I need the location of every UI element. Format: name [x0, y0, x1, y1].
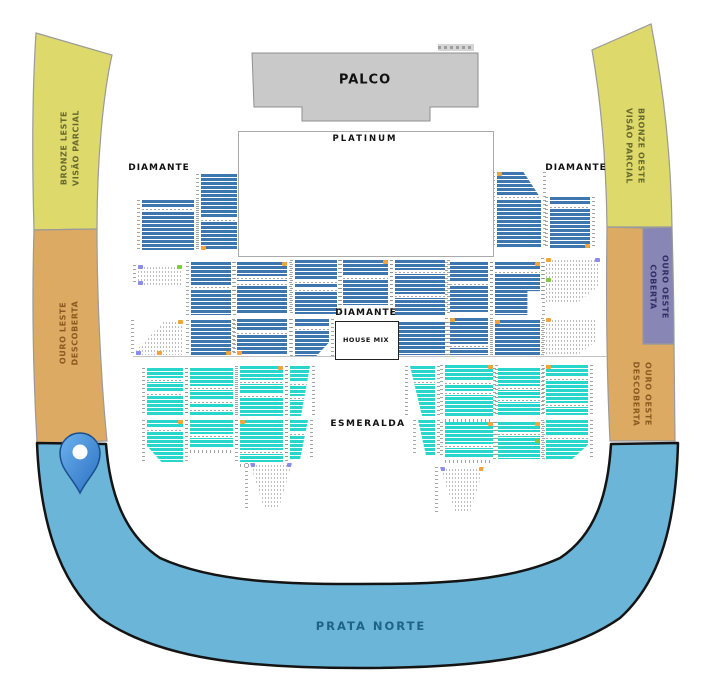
- seat-area-open[interactable]: [136, 320, 183, 355]
- row-number-strip: [405, 366, 408, 416]
- empty-seat-row: [445, 444, 493, 448]
- row-number-strip: [493, 422, 496, 459]
- empty-seat-row: [498, 398, 540, 402]
- seat-area-open[interactable]: [546, 258, 600, 302]
- row-number-strip: [131, 320, 134, 355]
- seat-accent-marker: [595, 258, 600, 262]
- empty-seat-row: [142, 207, 194, 211]
- empty-seat-row: [393, 233, 435, 237]
- seat-blocks-layer: [0, 0, 717, 687]
- seat-block-blue[interactable]: [395, 260, 445, 315]
- row-number-strip: [285, 420, 288, 460]
- row-number-strip: [186, 320, 189, 355]
- seat-accent-marker: [157, 351, 162, 355]
- empty-seat-row: [245, 168, 285, 172]
- row-number-strip: [590, 365, 593, 415]
- row-number-strip: [239, 174, 242, 250]
- seat-accent-marker: [138, 265, 143, 269]
- row-number-strip: [186, 262, 189, 315]
- seat-number-row: [293, 143, 335, 146]
- seat-block-cyan[interactable]: [498, 422, 540, 459]
- seat-accent-marker: [430, 205, 435, 209]
- seat-accent-marker: [450, 318, 455, 322]
- row-number-strip: [487, 205, 490, 247]
- row-number-strip: [310, 420, 313, 460]
- row-number-strip: [232, 262, 235, 313]
- row-number-strip: [388, 205, 391, 247]
- seat-block-blue[interactable]: [237, 262, 287, 313]
- seat-accent-marker: [535, 422, 540, 426]
- row-number-strip: [312, 366, 315, 416]
- seat-accent-marker: [546, 365, 551, 369]
- seat-accent-marker: [495, 320, 500, 324]
- row-number-strip: [337, 205, 340, 247]
- seat-number-row: [393, 143, 435, 146]
- empty-seat-row: [395, 294, 445, 298]
- seat-block-blue[interactable]: [495, 262, 540, 315]
- seat-accent-marker: [440, 467, 445, 471]
- seat-block-blue[interactable]: [237, 319, 287, 355]
- seat-accent-marker: [383, 260, 388, 264]
- seat-number-row: [190, 450, 233, 453]
- seat-accent-marker: [546, 278, 551, 282]
- empty-seat-row: [442, 161, 485, 165]
- row-number-strip: [493, 368, 496, 416]
- row-number-strip: [337, 147, 340, 200]
- row-number-strip: [235, 420, 238, 462]
- empty-seat-row: [498, 386, 540, 390]
- seat-accent-marker: [535, 262, 540, 266]
- seat-block-gold[interactable]: [442, 147, 485, 200]
- seat-block-cyan[interactable]: [147, 368, 183, 415]
- empty-seat-row: [295, 327, 329, 331]
- seat-accent-marker: [201, 246, 206, 250]
- seat-accent-marker: [280, 152, 285, 156]
- row-number-strip: [142, 368, 145, 415]
- seat-accent-marker: [479, 487, 484, 491]
- empty-seat-row: [497, 195, 541, 199]
- seat-block-cyan[interactable]: [418, 420, 435, 456]
- seat-block-gold[interactable]: [393, 148, 435, 200]
- empty-seat-row: [343, 276, 388, 280]
- seat-accent-marker: [250, 484, 255, 488]
- row-number-strip: [390, 260, 393, 315]
- empty-seat-row: [450, 344, 488, 348]
- seat-block-gold[interactable]: [342, 205, 385, 247]
- row-number-strip: [590, 420, 593, 460]
- row-number-strip: [541, 318, 544, 356]
- empty-seat-row: [342, 157, 385, 161]
- empty-seat-row: [237, 282, 287, 286]
- row-number-strip: [290, 260, 293, 314]
- seat-block-blue[interactable]: [395, 322, 445, 355]
- empty-seat-row: [442, 221, 485, 225]
- row-number-strip: [232, 319, 235, 355]
- seat-block-cyan[interactable]: [445, 422, 493, 458]
- seat-accent-marker: [178, 420, 183, 424]
- row-number-strip: [437, 147, 440, 200]
- row-number-strip: [235, 366, 238, 416]
- seat-accent-marker: [240, 420, 245, 424]
- seat-accent-marker: [535, 439, 540, 443]
- seat-block-blue[interactable]: [343, 260, 388, 305]
- empty-seat-row: [191, 285, 231, 289]
- row-number-strip: [413, 420, 416, 456]
- seat-block-gold[interactable]: [342, 147, 385, 200]
- seat-block-cyan[interactable]: [290, 366, 310, 416]
- seat-block-blue[interactable]: [295, 319, 329, 357]
- seat-block-blue[interactable]: [550, 197, 590, 248]
- row-number-strip: [445, 262, 448, 312]
- seat-accent-marker: [237, 351, 242, 355]
- venue-seating-map: PALCO PLATINUM DIAMANTE DIAMANTE DIAMANT…: [0, 0, 717, 687]
- empty-seat-row: [295, 288, 337, 292]
- seat-block-cyan[interactable]: [190, 368, 233, 415]
- empty-seat-row: [240, 394, 283, 398]
- empty-seat-row: [293, 178, 335, 182]
- empty-seat-row: [190, 434, 233, 438]
- seat-accent-marker: [497, 172, 502, 176]
- seat-accent-marker: [136, 351, 141, 355]
- seat-block-cyan[interactable]: [147, 420, 183, 462]
- empty-seat-row: [290, 382, 310, 386]
- seat-accent-marker: [479, 467, 484, 471]
- empty-seat-row: [410, 380, 435, 384]
- row-number-strip: [133, 265, 136, 285]
- seat-block-cyan[interactable]: [498, 368, 540, 416]
- empty-seat-row: [445, 391, 493, 395]
- empty-seat-row: [295, 280, 337, 284]
- row-number-strip: [185, 368, 188, 415]
- row-number-strip: [440, 365, 443, 417]
- empty-seat-row: [290, 432, 308, 436]
- seat-block-blue[interactable]: [295, 260, 337, 314]
- seat-number-row: [445, 460, 493, 463]
- row-number-strip: [541, 258, 544, 302]
- seat-block-blue[interactable]: [201, 174, 237, 250]
- empty-seat-row: [201, 218, 237, 222]
- row-number-strip: [435, 467, 438, 512]
- empty-seat-row: [393, 184, 435, 188]
- row-number-strip: [285, 366, 288, 416]
- empty-seat-row: [237, 276, 287, 280]
- seat-block-blue[interactable]: [191, 262, 231, 315]
- row-number-strip: [490, 262, 493, 315]
- seat-accent-marker: [591, 352, 596, 356]
- seat-accent-marker: [178, 320, 183, 324]
- seat-accent-marker: [442, 147, 447, 151]
- empty-seat-row: [147, 392, 183, 396]
- seat-block-gold[interactable]: [293, 148, 335, 200]
- empty-seat-row: [237, 331, 287, 335]
- empty-seat-row: [546, 436, 588, 440]
- empty-seat-row: [546, 403, 588, 407]
- empty-seat-row: [342, 152, 385, 156]
- empty-seat-row: [190, 400, 233, 404]
- seat-block-gold[interactable]: [393, 205, 435, 247]
- seat-block-cyan[interactable]: [546, 420, 588, 460]
- empty-seat-row: [550, 205, 590, 209]
- seat-area-open[interactable]: [250, 463, 292, 509]
- seat-area-open[interactable]: [546, 318, 596, 356]
- seat-accent-marker: [177, 265, 182, 269]
- seat-accent-marker: [287, 463, 292, 467]
- row-number-strip: [245, 463, 248, 509]
- seat-area-open[interactable]: [440, 467, 484, 512]
- row-number-strip: [541, 420, 544, 460]
- empty-seat-row: [342, 213, 385, 217]
- row-number-strip: [440, 422, 443, 458]
- seat-accent-marker: [226, 351, 231, 355]
- seat-block-gold[interactable]: [245, 205, 285, 247]
- seat-accent-marker: [278, 366, 283, 370]
- empty-seat-row: [190, 386, 233, 390]
- empty-seat-row: [190, 408, 233, 412]
- empty-seat-row: [293, 229, 335, 233]
- empty-seat-row: [147, 428, 183, 432]
- seat-accent-marker: [546, 258, 551, 262]
- row-number-strip: [592, 197, 595, 248]
- empty-seat-row: [495, 270, 540, 274]
- seat-block-blue[interactable]: [495, 320, 540, 355]
- row-number-strip: [545, 197, 548, 248]
- seat-block-blue[interactable]: [142, 200, 194, 250]
- row-number-strip: [487, 147, 490, 200]
- seat-block-blue[interactable]: [450, 262, 488, 312]
- seat-accent-marker: [479, 508, 484, 512]
- row-number-strip: [437, 205, 440, 247]
- seat-block-cyan[interactable]: [240, 420, 283, 462]
- seat-accent-marker: [138, 281, 143, 285]
- row-number-strip: [288, 148, 291, 200]
- empty-seat-row: [240, 450, 283, 454]
- seat-block-gold[interactable]: [442, 205, 485, 247]
- row-number-strip: [388, 148, 391, 200]
- empty-seat-row: [498, 432, 540, 436]
- row-number-strip: [185, 420, 188, 448]
- empty-seat-row: [290, 396, 310, 400]
- seat-accent-marker: [585, 244, 590, 248]
- seat-block-blue[interactable]: [191, 320, 231, 355]
- seat-block-gold[interactable]: [293, 205, 335, 247]
- row-number-strip: [338, 260, 341, 305]
- seat-block-blue[interactable]: [497, 172, 541, 248]
- empty-seat-row: [546, 377, 588, 381]
- row-number-strip: [490, 320, 493, 355]
- row-number-strip: [288, 205, 291, 247]
- row-number-strip: [541, 365, 544, 415]
- seat-block-blue[interactable]: [450, 318, 488, 355]
- row-number-strip: [492, 172, 495, 248]
- seat-block-cyan[interactable]: [240, 366, 283, 416]
- seat-block-gold[interactable]: [245, 152, 285, 200]
- row-number-strip: [331, 319, 334, 357]
- row-number-strip: [390, 322, 393, 355]
- seat-accent-marker: [282, 262, 287, 266]
- seat-block-cyan[interactable]: [445, 365, 493, 417]
- seat-block-cyan[interactable]: [290, 420, 308, 460]
- empty-seat-row: [147, 378, 183, 382]
- seat-block-cyan[interactable]: [546, 365, 588, 415]
- row-number-strip: [137, 200, 140, 250]
- seat-area-open[interactable]: [138, 265, 182, 285]
- seat-block-cyan[interactable]: [190, 420, 233, 448]
- row-number-strip: [196, 174, 199, 250]
- empty-seat-row: [393, 170, 435, 174]
- row-number-strip: [445, 318, 448, 355]
- seat-accent-marker: [546, 318, 551, 322]
- row-number-strip: [290, 319, 293, 357]
- empty-seat-row: [445, 381, 493, 385]
- seat-block-cyan[interactable]: [410, 366, 435, 416]
- row-number-strip: [142, 420, 145, 462]
- empty-seat-row: [450, 282, 488, 286]
- empty-seat-row: [240, 380, 283, 384]
- seat-number-row: [342, 142, 385, 145]
- empty-seat-row: [395, 270, 445, 274]
